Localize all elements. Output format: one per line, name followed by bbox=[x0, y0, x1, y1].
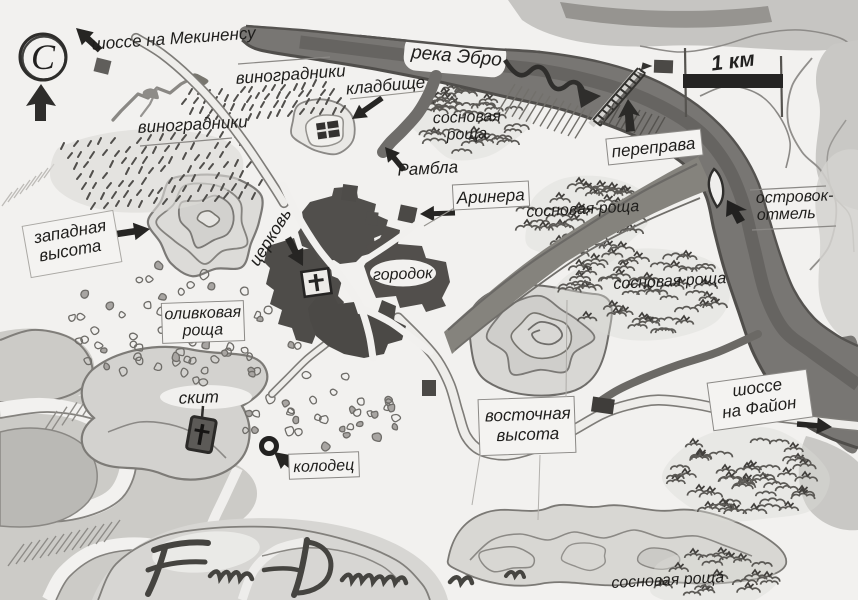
svg-text:городок: городок bbox=[373, 265, 435, 284]
svg-text:сосновая: сосновая bbox=[433, 108, 502, 127]
svg-text:Рамбла: Рамбла bbox=[397, 157, 459, 179]
svg-text:Аринера: Аринера bbox=[455, 185, 525, 208]
svg-text:роща: роща bbox=[181, 321, 223, 339]
svg-text:колодец: колодец bbox=[293, 457, 354, 476]
svg-text:C: C bbox=[31, 37, 56, 77]
svg-text:высота: высота bbox=[496, 424, 559, 445]
svg-text:восточная: восточная bbox=[485, 404, 571, 426]
svg-text:скит: скит bbox=[178, 387, 219, 407]
svg-text:островок-: островок- bbox=[756, 187, 834, 207]
svg-text:отмель: отмель bbox=[757, 205, 816, 224]
svg-text:роща: роща bbox=[445, 125, 487, 143]
svg-text:оливковая: оливковая bbox=[164, 304, 242, 324]
